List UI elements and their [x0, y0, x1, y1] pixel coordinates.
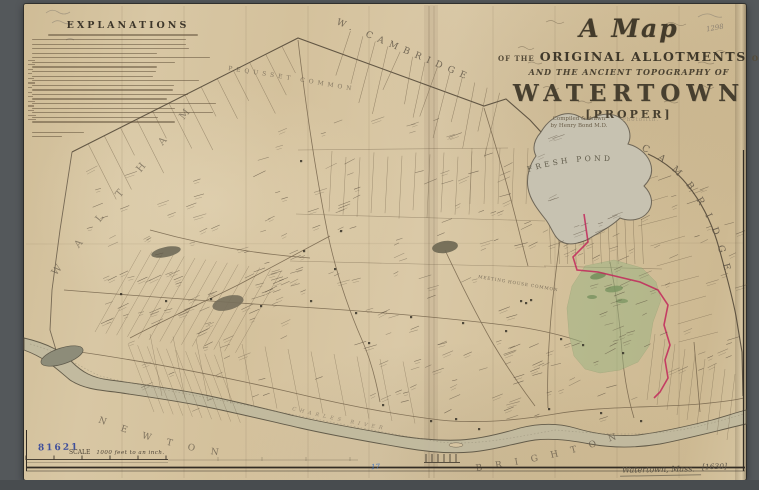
label-cambridge: CAMBRIDGE: [640, 143, 735, 283]
title-line2: OF THE ORIGINAL ALLOTMENTS OF LAND: [498, 46, 759, 65]
green-allotment-area: [567, 260, 661, 373]
fresh-pond: [527, 114, 651, 244]
pond: [150, 244, 181, 260]
label-meeting-house-common: MEETING HOUSE COMMON: [478, 275, 559, 293]
scale-label: SCALE: [69, 449, 90, 456]
hill: [211, 292, 246, 314]
explanations-item-numbers: [28, 56, 34, 120]
label-west-cambridge: W. CAMBRIDGE: [335, 18, 473, 84]
ponds-and-hills: [39, 239, 459, 370]
handwritten-map-title: Watertown, Mass.: [620, 464, 701, 476]
handwritten-year: [1630]: [702, 462, 727, 472]
scale-text: 1000 feet to an inch.: [96, 450, 164, 456]
label-pequusset-common: PEQUSSET COMMON: [228, 65, 356, 93]
title-of-the: OF THE: [498, 54, 535, 63]
title-line3: AND THE ANCIENT TOPOGRAPHY OF: [498, 67, 759, 77]
map-scan-viewport: W. CAMBRIDGE CAMBRIDGE WALTHAM NEWTON BR…: [0, 0, 759, 490]
explanations-title: EXPLANATIONS: [32, 20, 224, 31]
compiler-credit: Compiled & drawn by Henry Bond M.D.: [540, 116, 618, 129]
blue-ink-mark: 17: [371, 463, 380, 472]
title-of-land: OF LAND: [752, 54, 759, 63]
river-island: [449, 443, 463, 447]
photolith-credit: Photolith.: [622, 117, 659, 123]
explanations-block: EXPLANATIONS: [32, 20, 224, 137]
title-watertown: WATERTOWN: [498, 80, 759, 107]
credit-line2: by Henry Bond M.D.: [540, 123, 618, 130]
scale-caption: SCALE1000 feet to an inch.: [69, 449, 165, 456]
explanations-text-lines: [32, 34, 224, 137]
title-original-allotments: ORIGINAL ALLOTMENTS: [540, 49, 747, 64]
